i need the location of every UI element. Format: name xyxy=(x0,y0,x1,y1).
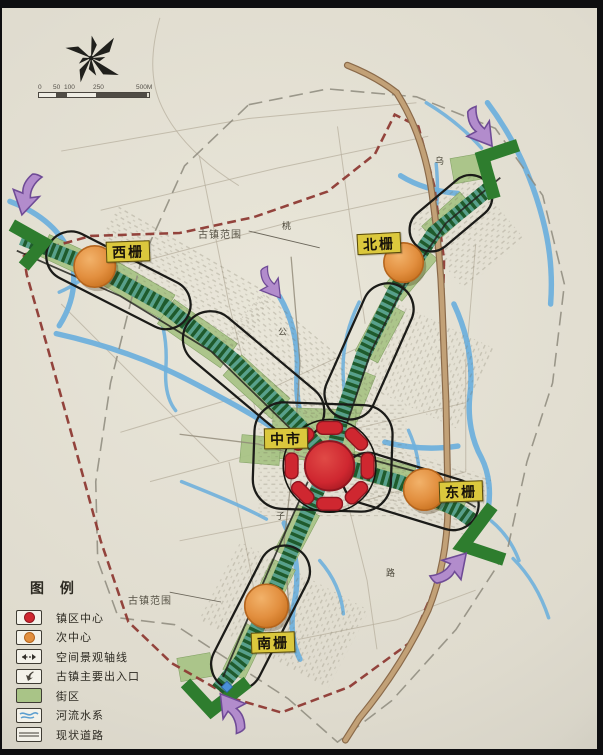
street-name-char: 公 xyxy=(278,325,287,338)
legend: 图 例 镇区中心 次中心 空间景观轴线 古镇主要出入口 xyxy=(16,578,206,745)
scale-bar-segments xyxy=(38,92,150,98)
scale-tick: 50 xyxy=(53,84,60,91)
legend-row: 空间景观轴线 xyxy=(16,647,206,667)
legend-row: 古镇主要出入口 xyxy=(16,667,206,687)
street-name-char: 子 xyxy=(276,509,285,522)
district-label-nanzha: 南栅 xyxy=(251,631,296,654)
legend-row: 现状道路 xyxy=(16,725,206,745)
scale-tick: 100 xyxy=(64,84,75,91)
legend-title: 图 例 xyxy=(30,578,206,598)
scale-tick: 0 xyxy=(38,84,42,91)
entrance-arrow-west-icon xyxy=(11,172,42,216)
district-label-dongzha: 东栅 xyxy=(439,480,484,503)
entrance-icon xyxy=(16,669,42,684)
district-label-xizha: 西栅 xyxy=(106,240,151,263)
legend-row: 街区 xyxy=(16,686,206,706)
river-icon xyxy=(16,708,42,723)
scale-tick: 500M xyxy=(136,84,152,91)
axis-icon xyxy=(16,649,42,664)
legend-row: 次中心 xyxy=(16,628,206,648)
street-name-char: 路 xyxy=(386,566,395,579)
district-label-beizha: 北栅 xyxy=(356,232,401,255)
town-center-icon xyxy=(16,610,42,625)
map-poster: 0 50 100 250 500M 西栅 北栅 东栅 南栅 中市 古镇范围 古镇… xyxy=(2,8,597,749)
legend-row: 河流水系 xyxy=(16,706,206,726)
block-icon xyxy=(16,688,42,703)
scale-bar: 0 50 100 250 500M xyxy=(38,84,168,100)
street-name-char: 乌 xyxy=(435,154,444,167)
road-icon xyxy=(16,727,42,742)
scale-tick: 250 xyxy=(93,84,104,91)
legend-row: 镇区中心 xyxy=(16,608,206,628)
sub-center-icon xyxy=(16,630,42,645)
north-arrow-icon xyxy=(60,24,122,90)
district-label-zhongshi: 中市 xyxy=(264,428,308,450)
old-town-boundary-label: 古镇范围 xyxy=(198,226,242,241)
street-name-char: 桃 xyxy=(282,219,291,232)
